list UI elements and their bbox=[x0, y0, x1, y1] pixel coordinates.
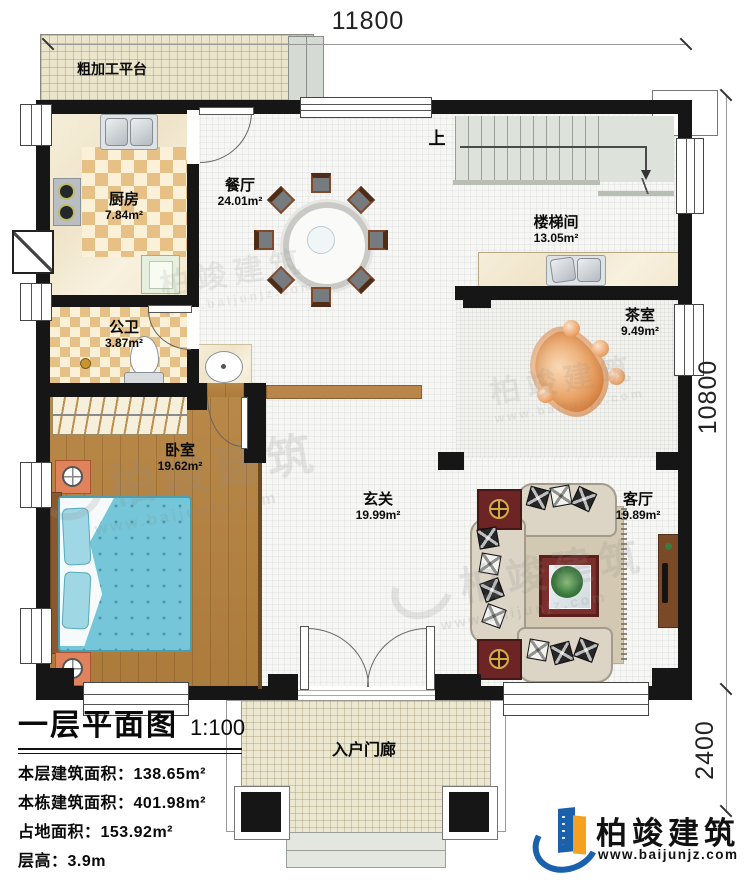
kitchen-name: 厨房 bbox=[105, 192, 143, 209]
dining-chair bbox=[311, 287, 331, 307]
wall-stub bbox=[438, 452, 464, 470]
window bbox=[20, 104, 52, 146]
window bbox=[300, 97, 432, 118]
logo-building-icon bbox=[573, 815, 586, 854]
table-medallion bbox=[489, 649, 509, 669]
title-rule bbox=[18, 748, 242, 754]
stove bbox=[53, 178, 81, 226]
brand-url: www.baijunjz.com bbox=[598, 847, 739, 862]
foyer-name: 玄关 bbox=[356, 492, 401, 509]
kitchen-sink bbox=[100, 114, 158, 150]
drawing-scale: 1:100 bbox=[190, 715, 245, 741]
info-line: 注：阳台算半面积，露台不算面积 bbox=[18, 876, 266, 880]
sofa-pillow bbox=[478, 552, 501, 575]
label-tea: 茶室9.49m² bbox=[621, 308, 659, 338]
cabinet-panel bbox=[149, 261, 173, 289]
entry-opening bbox=[298, 686, 435, 700]
wall-stub bbox=[656, 452, 692, 470]
tea-stool bbox=[608, 368, 625, 385]
plant bbox=[551, 566, 583, 598]
stair-landing bbox=[598, 116, 674, 182]
end-table bbox=[477, 489, 522, 530]
kitchen-door-opening bbox=[187, 110, 199, 164]
tv-plant bbox=[665, 543, 672, 550]
sofa-pillow bbox=[549, 484, 572, 507]
label-porch: 入户门廊 bbox=[332, 742, 396, 760]
brand-logo: 柏竣建筑 www.baijunjz.com bbox=[528, 800, 743, 872]
drawing-title: 一层平面图 bbox=[18, 700, 178, 744]
bath-area: 3.87m² bbox=[105, 337, 143, 350]
floor-drain bbox=[80, 358, 91, 369]
wall-corner bbox=[36, 668, 74, 700]
sink-basin bbox=[549, 256, 576, 283]
stairs-up-text: 上 bbox=[429, 129, 446, 148]
kitchen-door-leaf bbox=[199, 107, 254, 115]
floor-plan: 粗加工平台 厨房7.84m² 餐厅24.01m² 上 楼梯间13.05m² 茶室… bbox=[0, 0, 750, 880]
label-foyer: 玄关19.99m² bbox=[356, 492, 401, 522]
dining-chair bbox=[311, 173, 331, 193]
living-area: 19.89m² bbox=[616, 509, 661, 522]
wall-counter bbox=[455, 286, 692, 300]
dimension-right-lower: 2400 bbox=[692, 708, 718, 792]
bedroom-name: 卧室 bbox=[158, 443, 203, 460]
dimension-line-top bbox=[48, 44, 688, 45]
tv bbox=[662, 563, 668, 603]
porch-column-core bbox=[449, 792, 489, 832]
dimension-right-upper: 10800 bbox=[695, 352, 721, 442]
dimension-top: 11800 bbox=[318, 6, 418, 36]
tea-stool bbox=[592, 340, 609, 357]
tea-area: 9.49m² bbox=[621, 325, 659, 338]
info-line: 本层建筑面积：138.65m² bbox=[18, 760, 266, 784]
sofa-pillow bbox=[526, 638, 549, 661]
label-up: 上 bbox=[429, 129, 446, 148]
stairwell-area: 13.05m² bbox=[533, 232, 578, 245]
label-bath: 公卫3.87m² bbox=[105, 320, 143, 350]
bath-door-leaf bbox=[148, 305, 192, 313]
tea-name: 茶室 bbox=[621, 308, 659, 325]
window bbox=[503, 682, 649, 716]
entry-door-leaf bbox=[426, 626, 435, 690]
dining-chair bbox=[368, 230, 388, 250]
nightstand bbox=[55, 460, 91, 494]
sink-basin bbox=[577, 258, 601, 282]
foyer-area: 19.99m² bbox=[356, 509, 401, 522]
dining-name: 餐厅 bbox=[218, 178, 263, 195]
faucet-dot bbox=[221, 364, 226, 369]
dining-table-center bbox=[307, 226, 335, 254]
bed-pillow bbox=[62, 571, 92, 629]
label-living: 客厅19.89m² bbox=[616, 492, 661, 522]
wall-bedroom-top bbox=[36, 383, 187, 397]
stair-run-line bbox=[645, 146, 647, 172]
bedroom-door-leaf bbox=[241, 397, 248, 449]
window bbox=[20, 608, 52, 664]
stair-break-mark bbox=[636, 178, 654, 194]
entry-door-leaf bbox=[300, 626, 309, 690]
stairwell-name: 楼梯间 bbox=[533, 215, 578, 232]
bedroom-edge bbox=[258, 463, 262, 689]
label-platform: 粗加工平台 bbox=[77, 62, 147, 78]
sofa-pillow bbox=[476, 526, 499, 549]
label-kitchen: 厨房7.84m² bbox=[105, 192, 143, 222]
porch-name: 入户门廊 bbox=[332, 742, 396, 760]
tea-stool bbox=[563, 320, 580, 337]
window bbox=[20, 462, 52, 508]
window bbox=[20, 283, 52, 321]
bedroom-door-opening bbox=[207, 383, 244, 397]
counter-sink bbox=[546, 255, 606, 286]
label-dining: 餐厅24.01m² bbox=[218, 178, 263, 208]
title-row: 一层平面图 1:100 bbox=[18, 700, 266, 744]
washbasin bbox=[205, 351, 243, 383]
info-line: 本栋建筑面积：401.98m² bbox=[18, 789, 266, 813]
wall-corner bbox=[652, 668, 692, 700]
tea-stool bbox=[537, 386, 554, 403]
kitchen-cabinet bbox=[141, 255, 180, 294]
wall-corner bbox=[435, 674, 481, 700]
label-bedroom: 卧室19.62m² bbox=[158, 443, 203, 473]
bath-name: 公卫 bbox=[105, 320, 143, 337]
porch-steps bbox=[286, 832, 446, 868]
living-name: 客厅 bbox=[616, 492, 661, 509]
burner bbox=[58, 183, 75, 200]
platform-steps bbox=[288, 36, 324, 102]
info-line: 层高：3.9m bbox=[18, 847, 266, 871]
flue-box bbox=[12, 230, 54, 274]
rug-fringe bbox=[621, 508, 627, 660]
kitchen-area: 7.84m² bbox=[105, 209, 143, 222]
window bbox=[676, 138, 704, 214]
wall-notch bbox=[463, 300, 491, 308]
title-block: 一层平面图 1:100 本层建筑面积：138.65m² 本栋建筑面积：401.9… bbox=[18, 700, 266, 880]
sink-basin bbox=[105, 118, 128, 146]
platform-name: 粗加工平台 bbox=[77, 62, 147, 78]
wall-corner bbox=[268, 674, 298, 700]
sink-basin bbox=[130, 118, 153, 146]
info-line: 占地面积：153.92m² bbox=[18, 818, 266, 842]
stair-run-line bbox=[460, 146, 646, 148]
bedroom-area: 19.62m² bbox=[158, 460, 203, 473]
dining-area: 24.01m² bbox=[218, 195, 263, 208]
end-table bbox=[477, 639, 522, 680]
dining-chair bbox=[254, 230, 274, 250]
burner bbox=[58, 204, 75, 221]
foyer-screen bbox=[266, 385, 422, 399]
lamp bbox=[62, 466, 83, 487]
bed-pillow bbox=[62, 507, 92, 565]
label-stairwell: 楼梯间13.05m² bbox=[533, 215, 578, 245]
wall-pillar bbox=[187, 383, 207, 410]
dimension-line-right bbox=[726, 95, 727, 813]
stair-edge bbox=[453, 180, 600, 185]
table-medallion bbox=[489, 499, 509, 519]
tv-cabinet bbox=[658, 534, 679, 628]
wardrobe bbox=[52, 395, 188, 435]
